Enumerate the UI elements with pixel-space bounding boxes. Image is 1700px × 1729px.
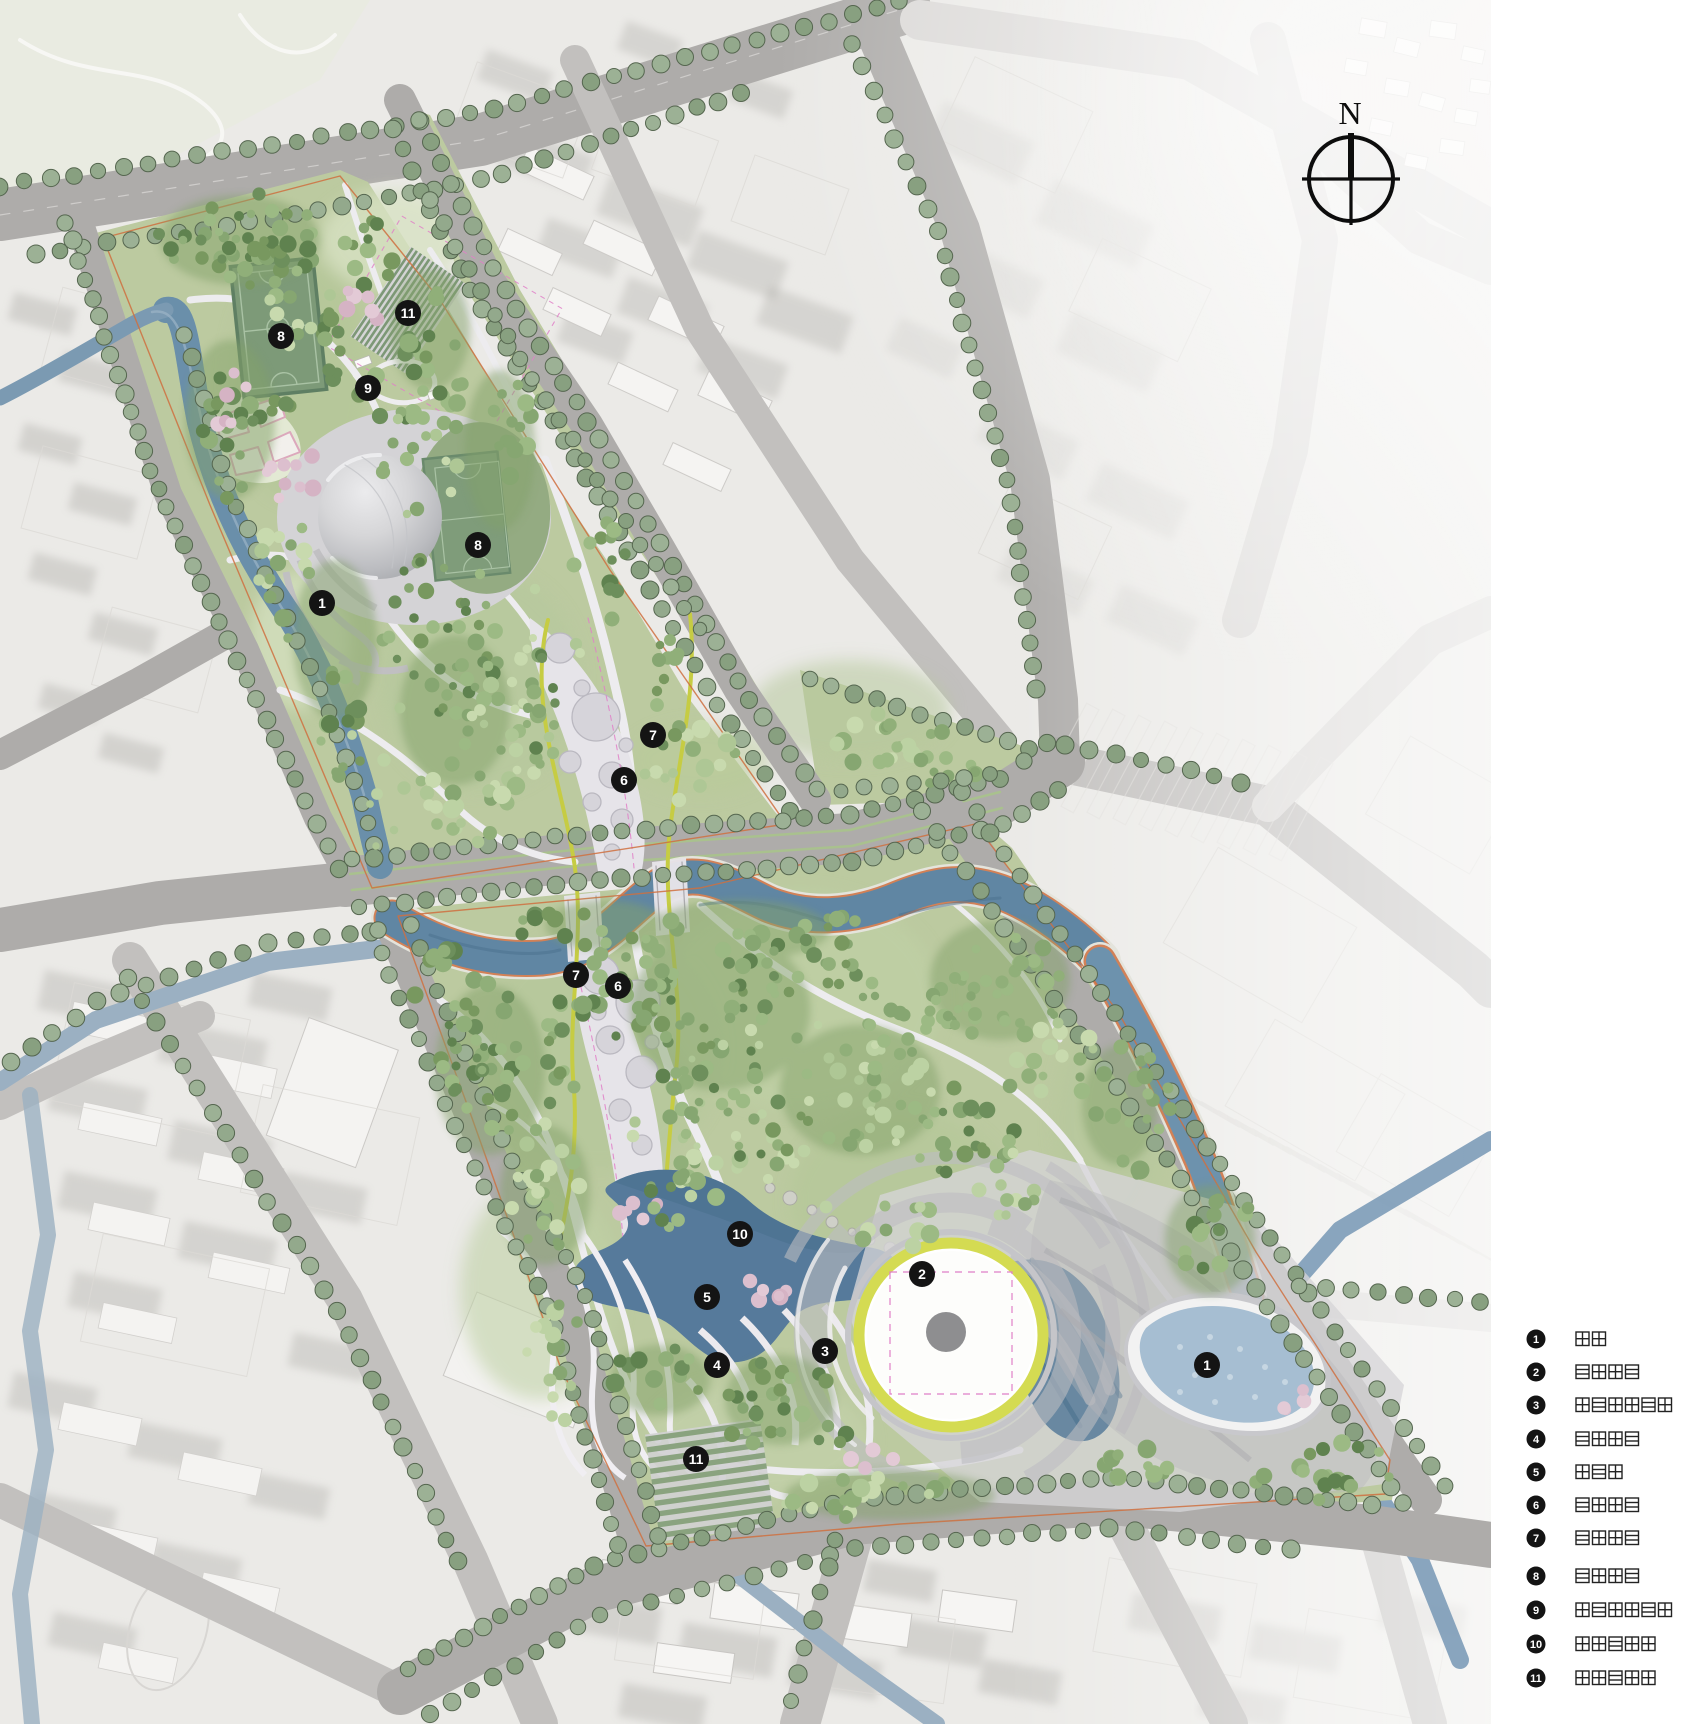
svg-text:2: 2 — [918, 1266, 926, 1282]
svg-text:6: 6 — [620, 772, 628, 788]
svg-text:6: 6 — [614, 978, 622, 994]
svg-text:10: 10 — [732, 1226, 748, 1242]
svg-text:11: 11 — [401, 305, 416, 321]
svg-text:7: 7 — [1533, 1533, 1539, 1545]
svg-text:10: 10 — [1530, 1639, 1542, 1651]
svg-text:3: 3 — [821, 1343, 829, 1359]
svg-text:1: 1 — [1533, 1334, 1539, 1346]
svg-text:2: 2 — [1533, 1367, 1539, 1379]
svg-text:8: 8 — [1533, 1571, 1539, 1583]
svg-text:9: 9 — [364, 380, 372, 396]
svg-text:4: 4 — [713, 1357, 721, 1373]
svg-text:4: 4 — [1533, 1434, 1540, 1446]
svg-text:9: 9 — [1533, 1605, 1539, 1617]
svg-text:6: 6 — [1533, 1500, 1539, 1512]
svg-text:8: 8 — [474, 537, 482, 553]
svg-text:8: 8 — [277, 328, 285, 344]
svg-text:11: 11 — [1530, 1673, 1542, 1685]
svg-text:5: 5 — [703, 1289, 711, 1305]
svg-text:11: 11 — [689, 1451, 704, 1467]
svg-text:7: 7 — [572, 967, 580, 983]
svg-text:3: 3 — [1533, 1400, 1539, 1412]
svg-text:7: 7 — [649, 727, 657, 743]
svg-text:1: 1 — [1203, 1357, 1211, 1373]
svg-text:N: N — [1338, 95, 1361, 131]
svg-text:5: 5 — [1533, 1467, 1539, 1479]
svg-text:1: 1 — [318, 595, 326, 611]
